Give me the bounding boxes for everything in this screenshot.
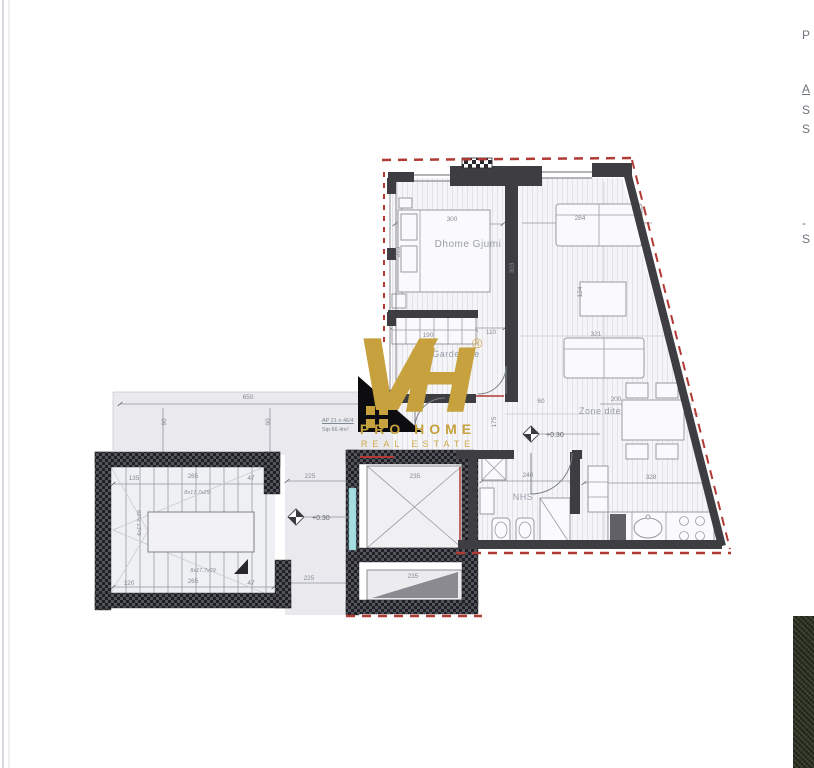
dimension-label: 6x17.7x29	[137, 510, 143, 535]
dimension-label: 240	[523, 472, 534, 479]
dimension-label: 235	[408, 573, 419, 580]
side-text-fragment: S	[802, 122, 810, 136]
dimension-label: 90	[161, 418, 168, 426]
sofa-top	[556, 204, 642, 246]
kitchen-tall-unit	[588, 466, 608, 512]
room-label: Zone dite	[579, 406, 621, 416]
room-label: NHS	[513, 492, 534, 502]
dimension-label: 321	[591, 331, 602, 338]
elevation-label: +0.30	[312, 515, 330, 522]
dimension-label: 124	[577, 286, 584, 297]
side-text-fragment: S	[802, 232, 810, 246]
dimension-label: 328	[646, 474, 657, 481]
dimension-label: 225	[304, 575, 315, 582]
dimension-label: 190	[423, 332, 434, 339]
dimension-label: 225	[305, 473, 316, 480]
dimension-label: 313	[395, 246, 402, 257]
dimension-label: 135	[129, 475, 140, 482]
kitchen-counter	[608, 512, 714, 544]
dimension-label: 90	[416, 352, 424, 359]
scan-edge-line	[2, 0, 4, 768]
vegetation-photo-corner	[793, 616, 814, 768]
elevation-label: +0.30	[546, 432, 564, 439]
room-label: Dhome Gjumi	[435, 239, 502, 250]
dimension-label: 8x17.7x29	[190, 568, 215, 574]
dimension-label: 8x17.7x29	[184, 490, 209, 496]
side-text-fragment: A	[802, 82, 810, 96]
dimension-label: 60	[537, 398, 545, 405]
side-text-fragment: P	[802, 28, 810, 42]
dimension-label: 110	[486, 329, 497, 336]
unit-label-line1: AP 21 n 46/4	[322, 417, 354, 426]
dimension-label: 265	[188, 473, 199, 480]
dimension-label: 235	[410, 473, 421, 480]
dimension-label: 47	[247, 580, 255, 587]
wardrobe	[392, 316, 476, 344]
dimension-label: 175	[491, 416, 498, 427]
coffee-table	[580, 282, 626, 316]
dimension-label: 120	[124, 580, 135, 587]
sofa-bottom	[564, 338, 644, 378]
bedroom-furniture	[392, 198, 490, 308]
dimension-label: 650	[243, 394, 254, 401]
dimension-label: 200	[611, 396, 622, 403]
dimension-label: 303	[509, 262, 516, 273]
unit-label-line2: Sip 66.4m²	[322, 426, 354, 435]
scanned-page: 3003133031901109028412432120017560240328…	[0, 0, 814, 768]
side-text-fragment: S	[802, 103, 810, 117]
dimension-label: 300	[447, 216, 458, 223]
floor-plan-drawing: 3003133031901109028412432120017560240328…	[0, 0, 814, 768]
dimension-label: 47	[247, 475, 255, 482]
dimension-label: 284	[575, 215, 586, 222]
scan-edge-line	[8, 0, 10, 768]
side-text-fragment: -	[802, 216, 806, 230]
room-label: Garderobe	[432, 349, 480, 359]
dimension-label: 265	[188, 578, 199, 585]
dimension-label: 90	[265, 418, 272, 426]
apartment-unit-label: AP 21 n 46/4 Sip 66.4m²	[322, 417, 354, 435]
